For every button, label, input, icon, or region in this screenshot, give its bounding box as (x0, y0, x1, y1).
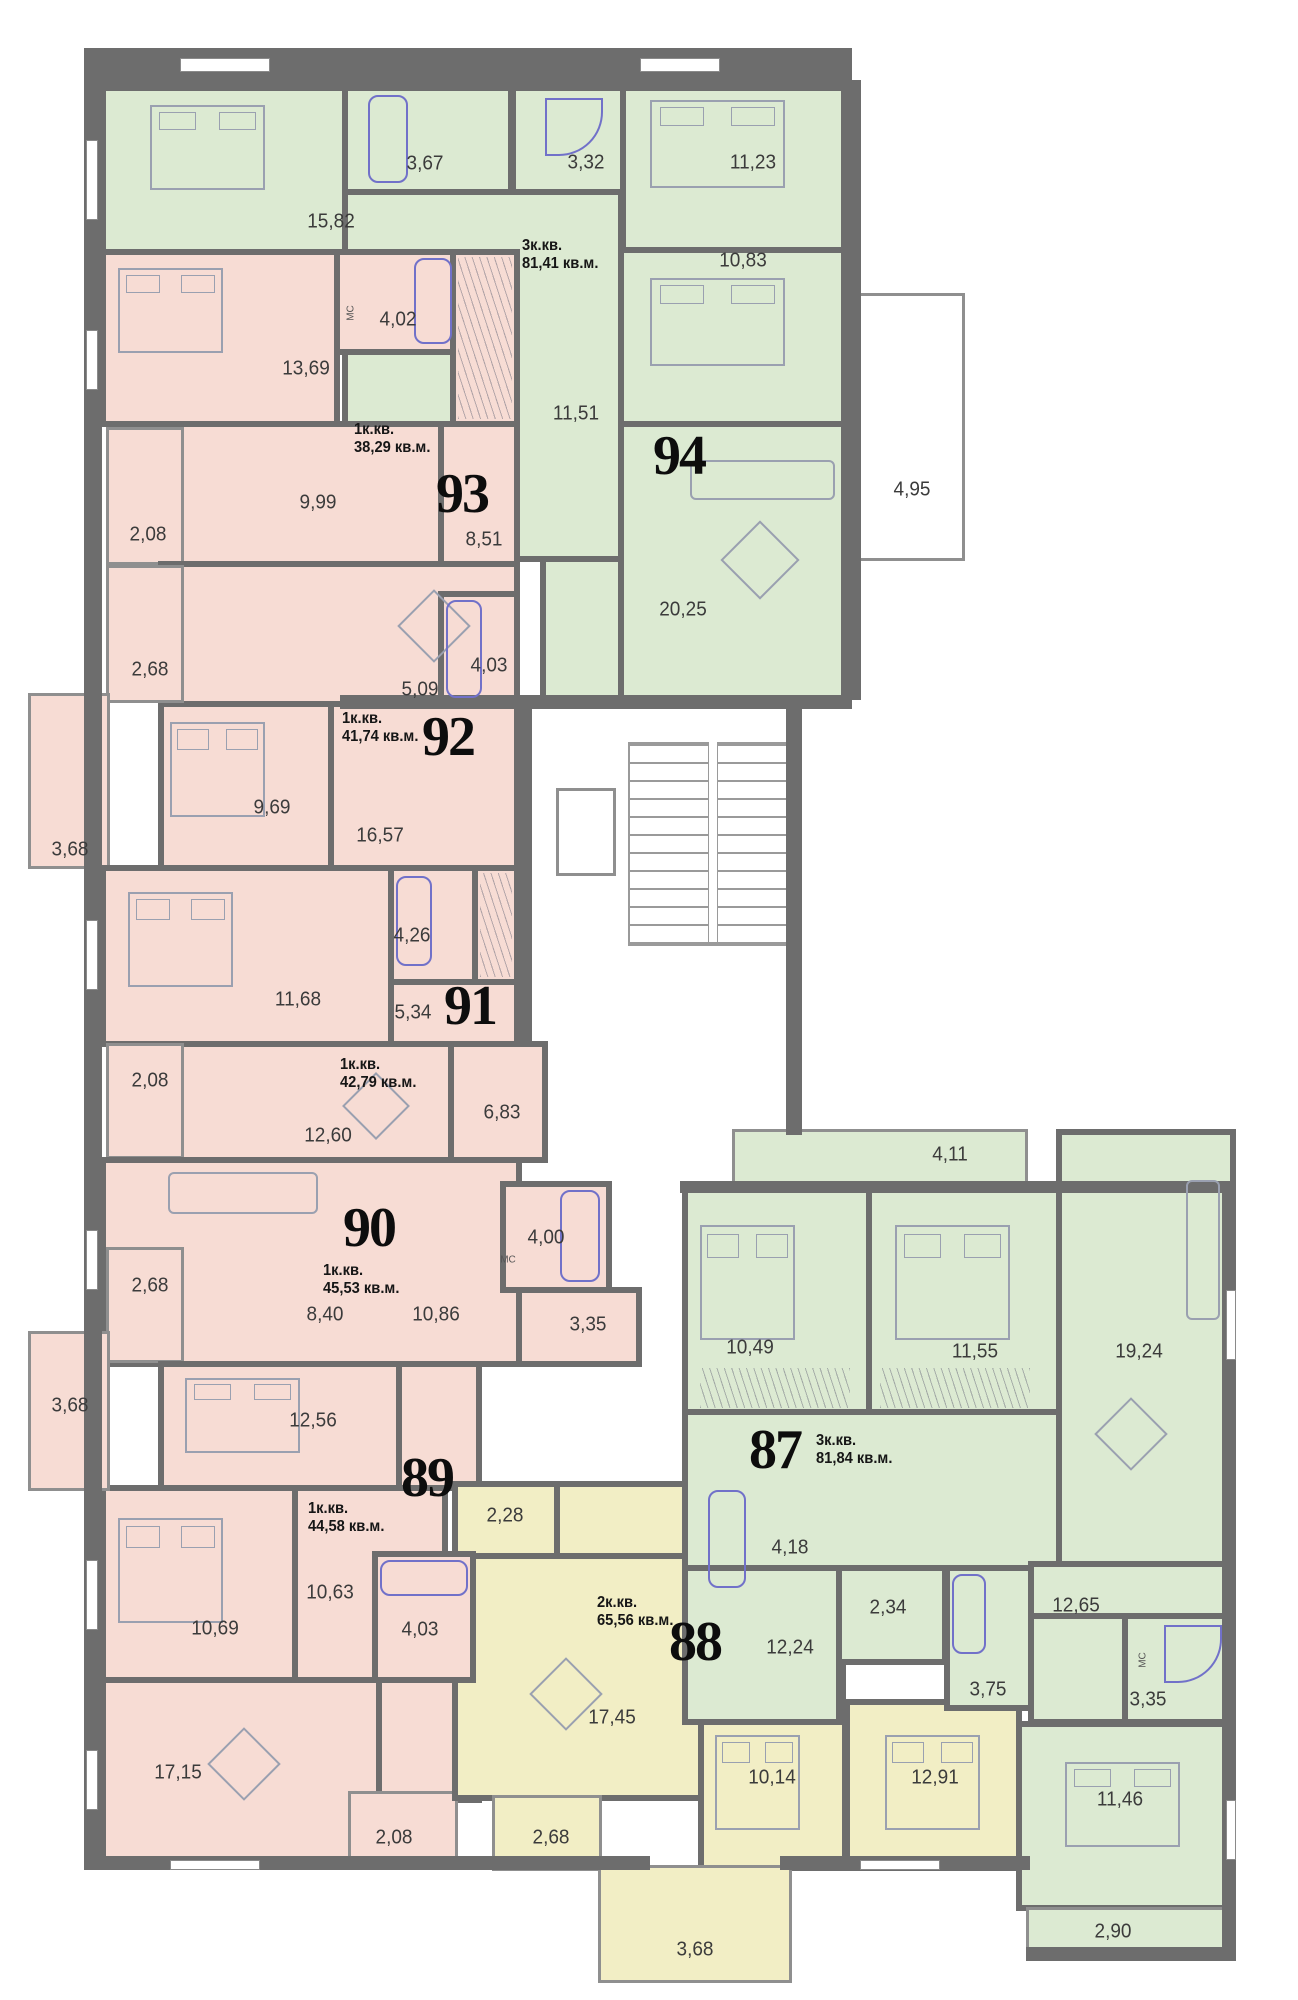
bathtub (414, 258, 452, 344)
room-area-label: 8,51 (466, 529, 503, 552)
apartment-number-92: 92 (422, 705, 474, 769)
room-area-label: 5,34 (395, 1002, 432, 1025)
room-area-label: 12,24 (766, 1637, 814, 1660)
room-area-label: 10,49 (726, 1337, 774, 1360)
apartment-number-87: 87 (749, 1418, 801, 1482)
apartment-type: 1к.кв. (340, 1056, 416, 1074)
apartment-info-87: 3к.кв. 81,84 кв.м. (816, 1432, 892, 1468)
window (640, 58, 720, 72)
room-area-label: 4,03 (471, 655, 508, 678)
room-area-label: 8,40 (307, 1304, 344, 1327)
room-area-label: 11,23 (730, 152, 776, 175)
apartment-area: 81,84 кв.м. (816, 1450, 892, 1468)
room-area-label: 4,00 (528, 1227, 565, 1250)
window (86, 140, 98, 220)
room-area-label: 17,15 (154, 1762, 202, 1785)
room-area-label: 20,25 (659, 599, 707, 622)
apartment-area: 81,41 кв.м. (522, 255, 598, 273)
room-area-label: 2,08 (132, 1070, 169, 1093)
apartment-area: 41,74 кв.м. (342, 728, 418, 746)
bed (150, 105, 265, 190)
room-area-label: 4,03 (402, 1619, 439, 1642)
bathtub (708, 1490, 746, 1588)
apartment-type: 2к.кв. (597, 1594, 673, 1612)
apartment-info-94: 3к.кв. 81,41 кв.м. (522, 237, 598, 273)
apt88-balcony-368 (598, 1865, 792, 1983)
window (1226, 1290, 1236, 1360)
room-area-label: 11,46 (1097, 1789, 1143, 1812)
bathtub (396, 876, 432, 966)
apartment-number-93: 93 (436, 462, 488, 526)
apartment-number-91: 91 (444, 974, 496, 1038)
wall-bottom-left (84, 1856, 650, 1870)
wall-corridor-left (520, 705, 532, 1045)
room-area-label: 16,57 (356, 825, 404, 848)
apartment-type: 3к.кв. (522, 237, 598, 255)
room-area-label: 11,51 (553, 403, 599, 426)
room-area-label: 10,86 (412, 1304, 460, 1327)
room-area-label: 10,69 (191, 1618, 239, 1641)
room-area-label: 3,68 (677, 1939, 714, 1962)
room-area-label: 4,95 (894, 479, 931, 502)
room-area-label: 2,68 (132, 1275, 169, 1298)
apartment-type: 3к.кв. (816, 1432, 892, 1450)
room-area-label: 4,18 (772, 1537, 809, 1560)
room-area-label: 3,75 (970, 1679, 1007, 1702)
apartment-number-89: 89 (401, 1446, 453, 1510)
room-area-label: 11,68 (275, 989, 321, 1012)
room-area-label: 12,60 (304, 1125, 352, 1148)
window (86, 920, 98, 990)
room-area-label: 3,67 (407, 153, 444, 176)
apartment-type: 1к.кв. (323, 1262, 399, 1280)
bed (895, 1225, 1010, 1340)
bed (118, 268, 223, 353)
bathtub (446, 600, 482, 698)
bed (185, 1378, 300, 1453)
washing-machine-label: МС (500, 1255, 516, 1266)
room-area-label: 4,26 (394, 925, 431, 948)
apt91-wardrobe-hatch (480, 873, 512, 977)
sofa (1186, 1180, 1220, 1320)
room-area-label: 12,56 (289, 1410, 337, 1433)
window (860, 1860, 940, 1870)
apartment-area: 65,56 кв.м. (597, 1612, 673, 1630)
window (86, 330, 98, 390)
apartment-info-93: 1к.кв. 38,29 кв.м. (354, 421, 430, 457)
apartment-type: 1к.кв. (308, 1500, 384, 1518)
apt94-entry-strip (540, 556, 624, 707)
room-area-label: 10,14 (748, 1767, 796, 1790)
apartment-area: 42,79 кв.м. (340, 1074, 416, 1092)
wall-right-upper (845, 80, 861, 700)
room-area-label: 2,08 (376, 1827, 413, 1850)
apartment-area: 44,58 кв.м. (308, 1518, 384, 1536)
wall-apt87-top (680, 1181, 1236, 1193)
room-area-label: 2,08 (130, 524, 167, 547)
bathtub (560, 1190, 600, 1282)
apartment-info-91: 1к.кв. 42,79 кв.м. (340, 1056, 416, 1092)
apt94-balcony-495 (847, 293, 965, 561)
room-area-label: 3,35 (570, 1314, 607, 1337)
apt87-wardrobe-hatch (700, 1368, 850, 1408)
room-area-label: 10,63 (306, 1582, 354, 1605)
room-area-label: 5,09 (402, 679, 439, 702)
room-area-label: 9,69 (254, 797, 291, 820)
window (170, 1860, 260, 1870)
apt87-wardrobe-hatch (880, 1368, 1030, 1408)
floor-plan: 15,82 3,67 3,32 11,23 10,83 11,51 20,25 … (0, 0, 1298, 2000)
apt92-balcony-268 (106, 565, 184, 703)
bed (170, 722, 265, 817)
window (86, 1560, 98, 1630)
elevator-shaft (556, 788, 616, 876)
apartment-area: 45,53 кв.м. (323, 1280, 399, 1298)
room-area-label: 4,02 (380, 309, 417, 332)
wall-stairhall-right (786, 695, 802, 1135)
room-area-label: 3,35 (1130, 1689, 1167, 1712)
apt91-balcony-208 (106, 1043, 184, 1159)
bed (700, 1225, 795, 1340)
apt93-wardrobe-hatch (458, 257, 512, 419)
room-area-label: 17,45 (588, 1707, 636, 1730)
room-area-label: 15,82 (307, 211, 355, 234)
apartment-info-89: 1к.кв. 44,58 кв.м. (308, 1500, 384, 1536)
room-area-label: 2,90 (1095, 1921, 1132, 1944)
room-area-label: 13,69 (282, 358, 330, 381)
washing-machine-label: МС (346, 305, 357, 321)
apartment-info-92: 1к.кв. 41,74 кв.м. (342, 710, 418, 746)
apartment-type: 1к.кв. (354, 421, 430, 439)
apt90-balcony-268 (106, 1247, 184, 1363)
bed (650, 100, 785, 188)
bathtub (952, 1574, 986, 1654)
window (1226, 1800, 1236, 1860)
bed (650, 278, 785, 366)
apartment-info-90: 1к.кв. 45,53 кв.м. (323, 1262, 399, 1298)
room-area-label: 2,68 (533, 1827, 570, 1850)
bathtub (380, 1560, 468, 1596)
room-area-label: 3,68 (52, 1395, 89, 1418)
window (86, 1230, 98, 1290)
room-area-label: 2,28 (487, 1505, 524, 1528)
room-area-label: 4,11 (932, 1144, 968, 1167)
room-area-label: 3,32 (568, 152, 605, 175)
room-area-label: 6,83 (484, 1102, 521, 1125)
bed (128, 892, 233, 987)
wall-bottom-right (1026, 1947, 1236, 1961)
apartment-number-90: 90 (343, 1196, 395, 1260)
apartment-number-88: 88 (669, 1610, 721, 1674)
bed (118, 1518, 223, 1623)
washing-machine-label: МС (1138, 1652, 1149, 1668)
apartment-info-88: 2к.кв. 65,56 кв.м. (597, 1594, 673, 1630)
apartment-number-94: 94 (653, 424, 705, 488)
apartment-area: 38,29 кв.м. (354, 439, 430, 457)
room-area-label: 19,24 (1115, 1341, 1163, 1364)
sofa (690, 460, 835, 500)
room-area-label: 10,83 (719, 250, 767, 273)
window (86, 1750, 98, 1810)
bathtub (368, 95, 408, 183)
staircase-divider (708, 742, 718, 942)
sofa (168, 1172, 318, 1214)
window (180, 58, 270, 72)
room-area-label: 12,91 (911, 1767, 959, 1790)
apartment-type: 1к.кв. (342, 710, 418, 728)
room-area-label: 2,34 (870, 1597, 907, 1620)
room-area-label: 2,68 (132, 659, 169, 682)
room-area-label: 3,68 (52, 839, 89, 862)
room-area-label: 11,55 (952, 1341, 998, 1364)
room-area-label: 9,99 (300, 492, 337, 515)
room-area-label: 12,65 (1052, 1595, 1100, 1618)
